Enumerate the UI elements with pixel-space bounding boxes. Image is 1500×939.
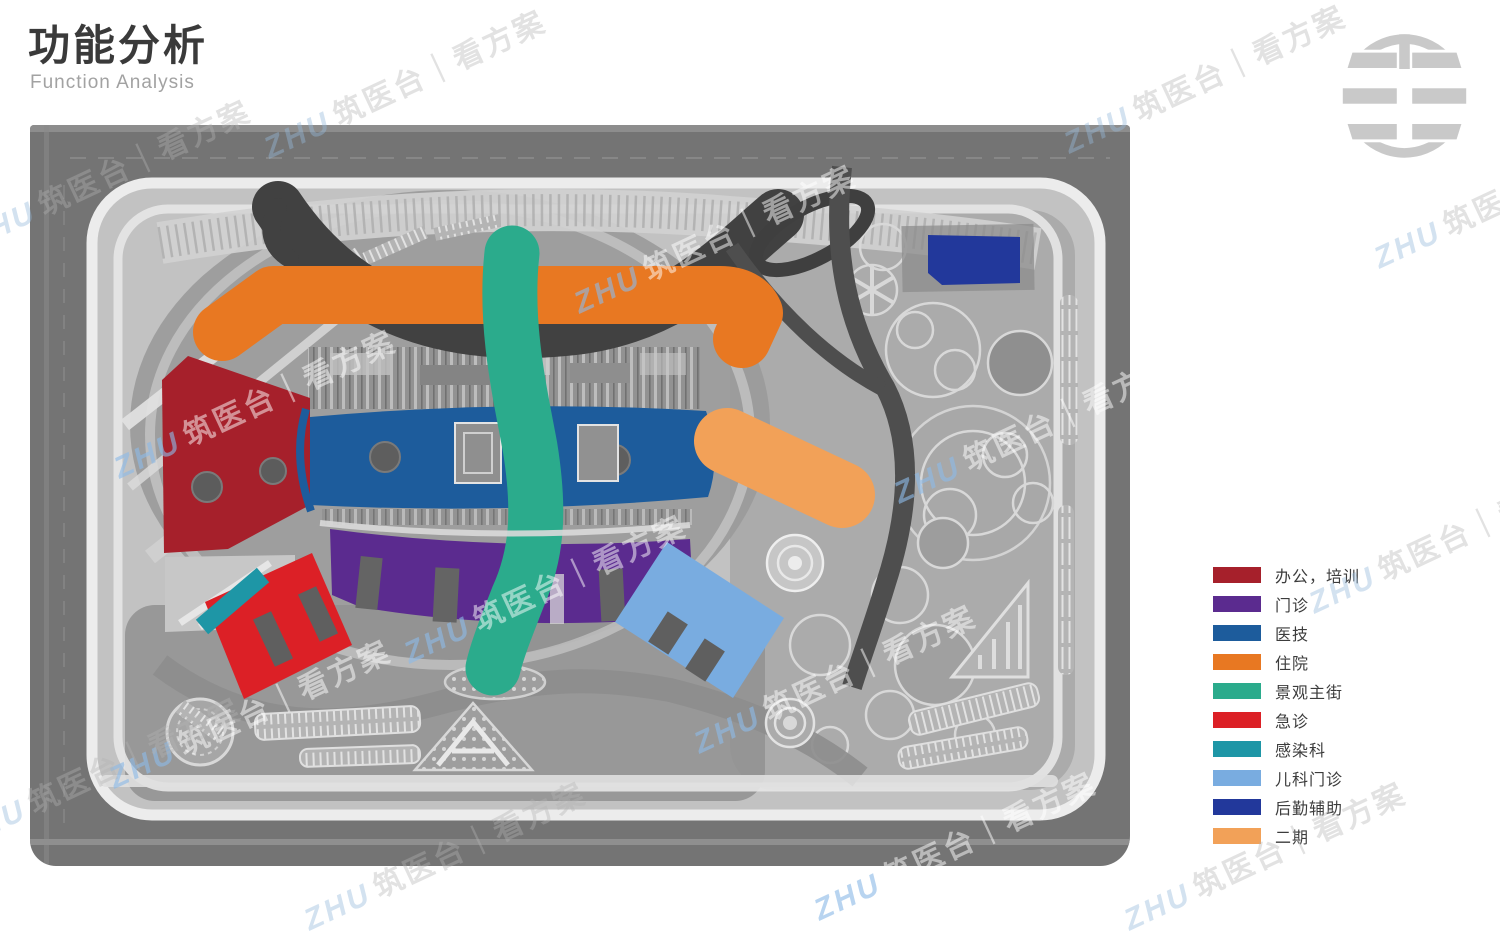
legend-label: 后勤辅助 — [1275, 795, 1343, 819]
legend-swatch — [1213, 741, 1261, 757]
legend-label: 儿科门诊 — [1275, 766, 1343, 790]
legend-label: 住院 — [1275, 650, 1309, 674]
legend-label: 急诊 — [1275, 708, 1309, 732]
legend: 办公，培训门诊医技住院景观主街急诊感染科儿科门诊后勤辅助二期 — [1213, 560, 1360, 850]
legend-label: 景观主街 — [1275, 679, 1343, 703]
legend-label: 医技 — [1275, 621, 1309, 645]
legend-item-2: 医技 — [1213, 618, 1360, 647]
company-logo — [1337, 16, 1472, 176]
legend-swatch — [1213, 683, 1261, 699]
legend-swatch — [1213, 770, 1261, 786]
legend-item-8: 后勤辅助 — [1213, 792, 1360, 821]
site-plan — [30, 125, 1130, 866]
page-subtitle: Function Analysis — [30, 72, 195, 94]
legend-item-3: 住院 — [1213, 647, 1360, 676]
corner-round-feature — [167, 699, 233, 765]
legend-swatch — [1213, 828, 1261, 844]
legend-item-0: 办公，培训 — [1213, 560, 1360, 589]
legend-swatch — [1213, 596, 1261, 612]
zone-logistics-support[interactable] — [901, 224, 1034, 292]
legend-label: 二期 — [1275, 824, 1309, 848]
legend-swatch — [1213, 567, 1261, 583]
legend-label: 办公，培训 — [1275, 563, 1360, 587]
legend-item-6: 感染科 — [1213, 734, 1360, 763]
page-title: 功能分析 — [28, 12, 208, 73]
legend-item-5: 急诊 — [1213, 705, 1360, 734]
legend-swatch — [1213, 799, 1261, 815]
legend-item-1: 门诊 — [1213, 589, 1360, 618]
logo-emblem-icon — [1337, 16, 1472, 176]
legend-swatch — [1213, 654, 1261, 670]
legend-item-9: 二期 — [1213, 821, 1360, 850]
legend-swatch — [1213, 712, 1261, 728]
legend-label: 感染科 — [1275, 737, 1326, 761]
legend-item-4: 景观主街 — [1213, 676, 1360, 705]
legend-swatch — [1213, 625, 1261, 641]
legend-label: 门诊 — [1275, 592, 1309, 616]
legend-item-7: 儿科门诊 — [1213, 763, 1360, 792]
